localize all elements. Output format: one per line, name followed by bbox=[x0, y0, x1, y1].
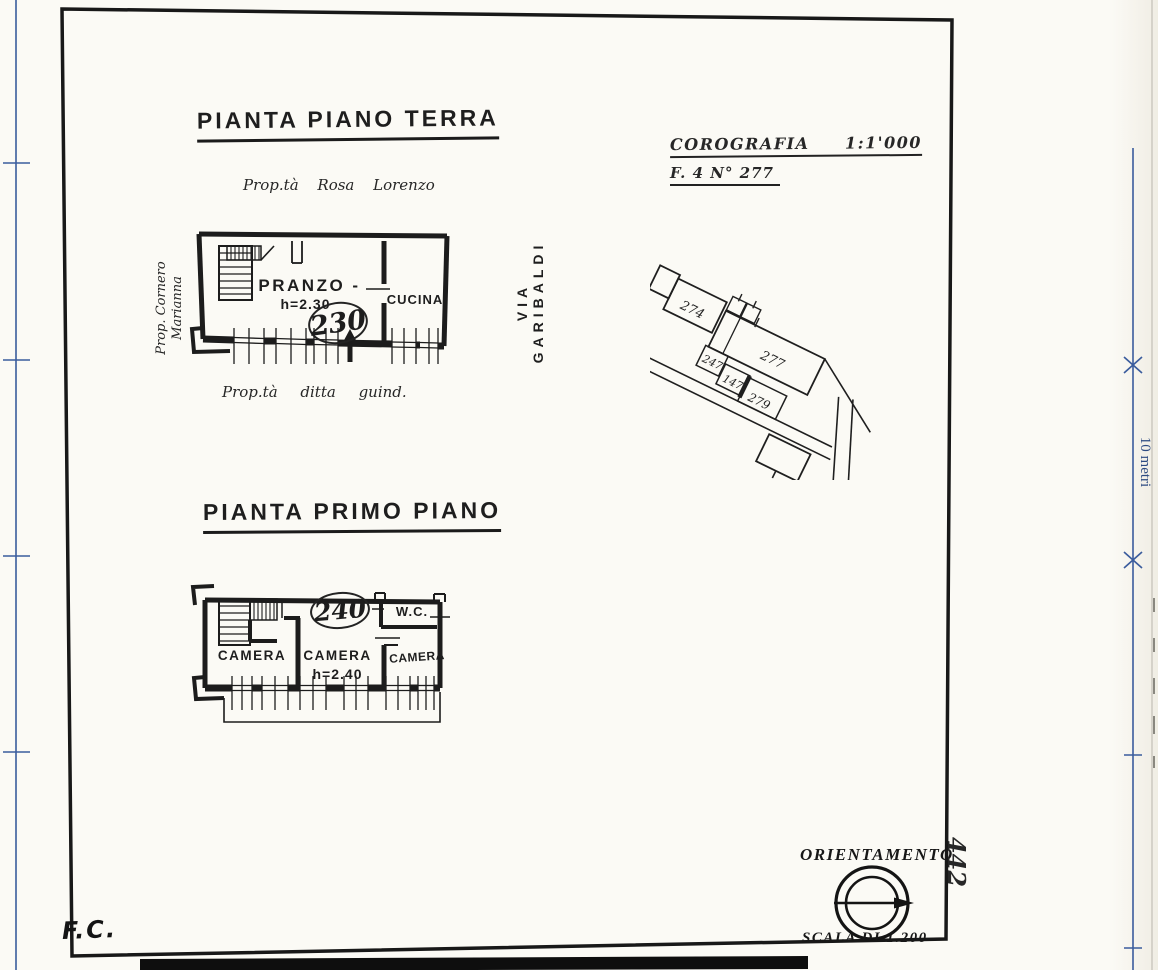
corografia-title: COROGRAFIA bbox=[670, 134, 810, 154]
map-parcel-outline bbox=[650, 265, 680, 298]
corografia-ref: F. 4 N° 277 bbox=[670, 164, 780, 186]
room-label-camera-1: CAMERA bbox=[216, 648, 288, 663]
surveyor-initials: F.C. bbox=[62, 915, 118, 945]
staircase bbox=[219, 599, 277, 645]
room-label-wc: W.C. bbox=[390, 604, 434, 619]
room-height-camera-2: h=2.40 bbox=[305, 666, 370, 682]
map-label-277: 277 bbox=[757, 348, 787, 373]
scan-background-linework bbox=[0, 0, 1158, 970]
kitchen-partition bbox=[366, 241, 390, 341]
left-ruler bbox=[3, 0, 30, 970]
margin-number: 442 bbox=[943, 832, 971, 892]
right-ruler bbox=[1124, 148, 1142, 970]
ground-floor-owner-bottom: Prop.tà ditta guind. bbox=[222, 383, 407, 401]
chimney-notch bbox=[292, 241, 302, 263]
first-floor-title: PIANTA PRIMO PIANO bbox=[203, 497, 501, 534]
scanned-floorplan-page: { "colors": { "ink": "#1c1c1c", "blue": … bbox=[0, 0, 1158, 970]
map-label-279: 279 bbox=[745, 390, 773, 413]
owner-left-line1: Prop. Cornero bbox=[154, 233, 170, 383]
room-partition-1 bbox=[282, 603, 300, 688]
room-label-cucina: CUCINA bbox=[386, 292, 444, 307]
corografia-map-sketch: 274 277 247 147 279 bbox=[650, 245, 935, 480]
scale-label: SCALA DI 1.200 bbox=[802, 930, 928, 947]
next-page-edge-bar bbox=[140, 956, 808, 970]
corografia-header: COROGRAFIA 1:1'000 bbox=[670, 133, 922, 158]
room-label-pranzo: PRANZO - bbox=[252, 276, 367, 296]
street-label-via-garibaldi: VIA GARIBALDI bbox=[514, 227, 534, 377]
ground-floor-owner-top: Prop.tà Rosa Lorenzo bbox=[243, 176, 435, 194]
room-label-camera-2: CAMERA bbox=[300, 648, 375, 663]
ground-floor-title: PIANTA PIANO TERRA bbox=[197, 104, 499, 142]
lower-extension-outline bbox=[224, 692, 440, 722]
ruler-scale-label: 10 metri bbox=[1135, 427, 1153, 497]
ground-floor-owner-left: Prop. Cornero Marianna bbox=[154, 233, 190, 383]
map-street-line-2 bbox=[650, 354, 830, 460]
map-detached-block bbox=[756, 434, 810, 480]
corografia-scale: 1:1'000 bbox=[845, 133, 922, 153]
owner-left-line2: Marianna bbox=[170, 233, 186, 383]
